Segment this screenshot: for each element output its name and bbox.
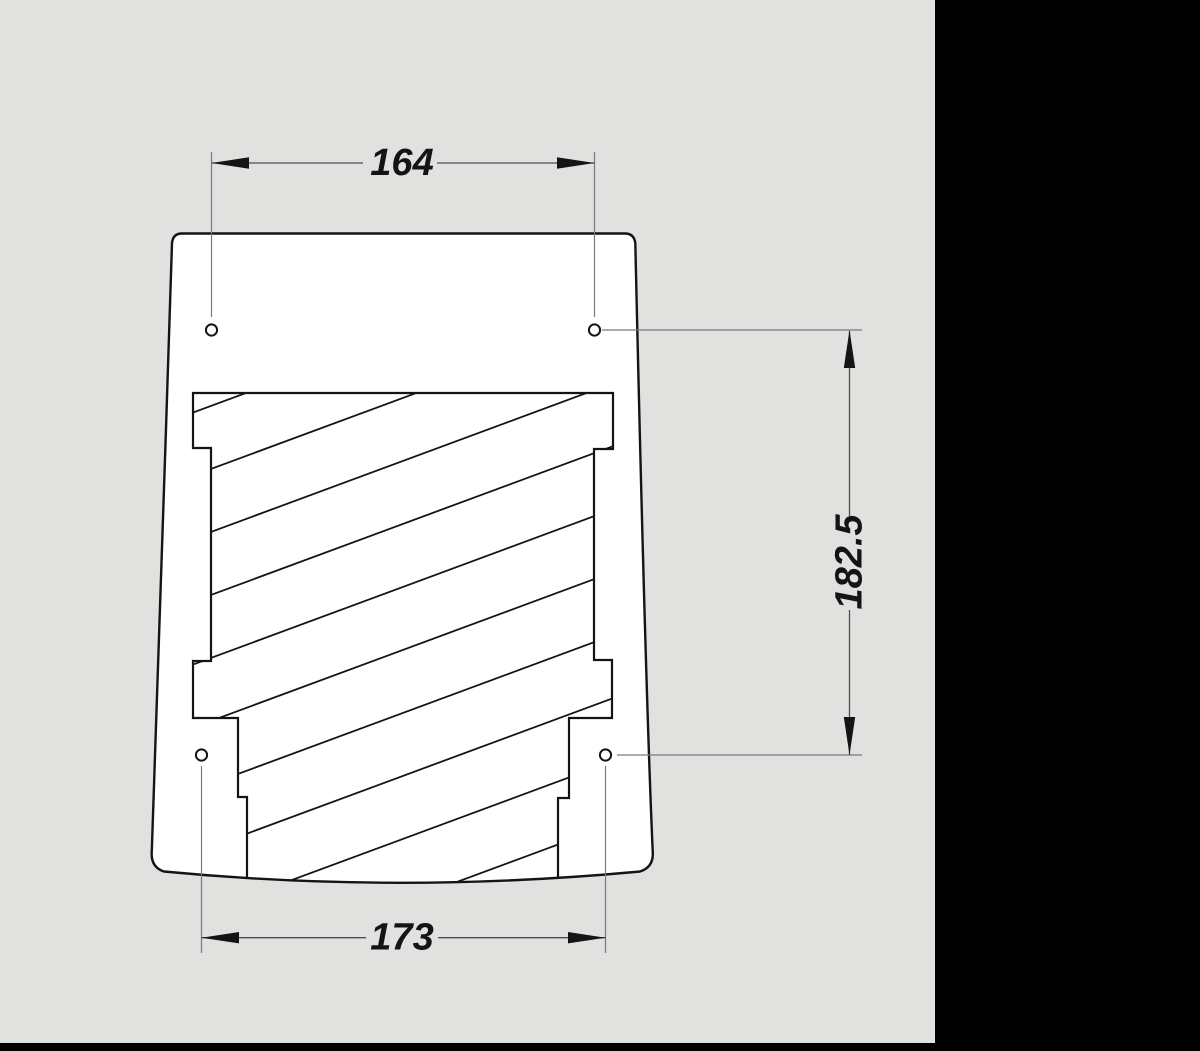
hole-bottom-left — [196, 749, 207, 760]
dimension-right-label: 182.5 — [829, 514, 871, 610]
hole-bottom-right — [600, 749, 611, 760]
part-outline — [152, 234, 653, 883]
dimension-right: 182.5 — [829, 330, 871, 755]
bottom-black-bar — [0, 1043, 1200, 1051]
arrow-left-icon — [202, 932, 240, 943]
drawing-area: 164 173 182.5 — [0, 0, 935, 1043]
dimension-top-label: 164 — [370, 142, 433, 184]
arrow-right-icon — [568, 932, 606, 943]
hole-top-right — [589, 324, 600, 335]
dimension-bottom-label: 173 — [370, 917, 433, 959]
arrow-down-icon — [844, 717, 855, 755]
screenshot-canvas: 164 173 182.5 — [0, 0, 1200, 1051]
technical-drawing-svg: 164 173 182.5 — [0, 0, 935, 1043]
arrow-right-icon — [557, 157, 595, 168]
right-black-panel — [935, 0, 1200, 1051]
hole-top-left — [206, 324, 217, 335]
arrow-left-icon — [212, 157, 250, 168]
arrow-up-icon — [844, 330, 855, 368]
dimension-bottom: 173 — [202, 917, 606, 959]
dimension-top: 164 — [212, 142, 595, 184]
